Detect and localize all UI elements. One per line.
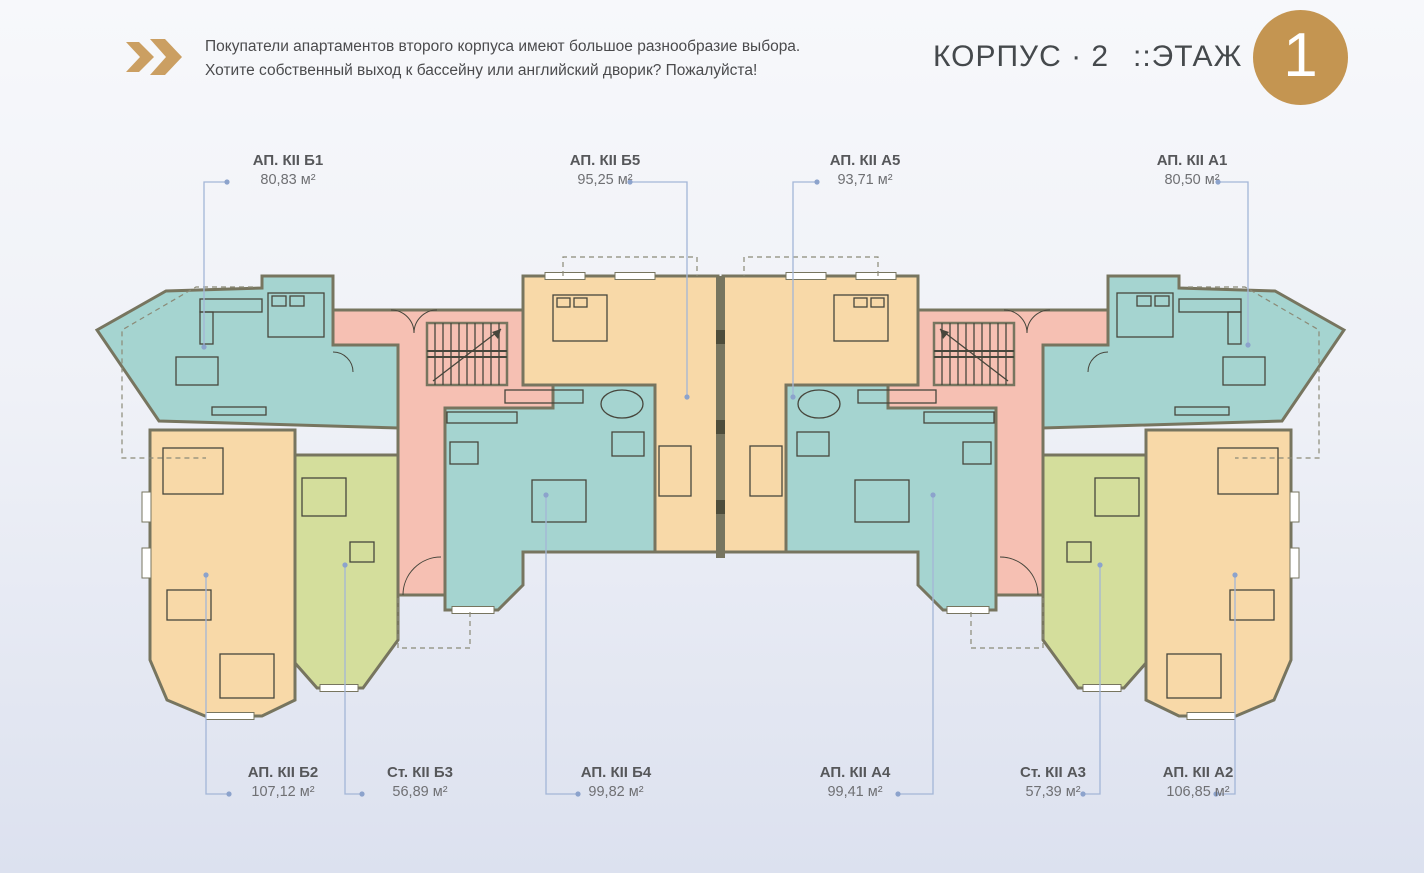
apartment-label-a3: Ст. КII А3 57,39 м²: [1020, 764, 1086, 800]
apartment-a4-region[interactable]: [786, 385, 996, 610]
apartment-label-b4: АП. КII Б4 99,82 м²: [581, 764, 652, 800]
apartment-label-b2: АП. КII Б2 107,12 м²: [248, 764, 319, 800]
apartment-label-b3: Ст. КII Б3 56,89 м²: [387, 764, 453, 800]
floor-plan-drawing: [0, 0, 1424, 873]
apartment-label-a4: АП. КII А4 99,41 м²: [820, 764, 891, 800]
central-wall: [716, 276, 725, 558]
apartment-b4-region[interactable]: [445, 385, 655, 610]
apartment-label-b5: АП. КII Б5 95,25 м²: [570, 152, 641, 188]
apartment-label-a5: АП. КII А5 93,71 м²: [830, 152, 901, 188]
apartment-label-a2: АП. КII А2 106,85 м²: [1163, 764, 1234, 800]
apartment-label-a1: АП. КII А1 80,50 м²: [1157, 152, 1228, 188]
floor-plan-page: Покупатели апартаментов второго корпуса …: [0, 0, 1424, 873]
apartment-label-b1: АП. КII Б1 80,83 м²: [253, 152, 324, 188]
